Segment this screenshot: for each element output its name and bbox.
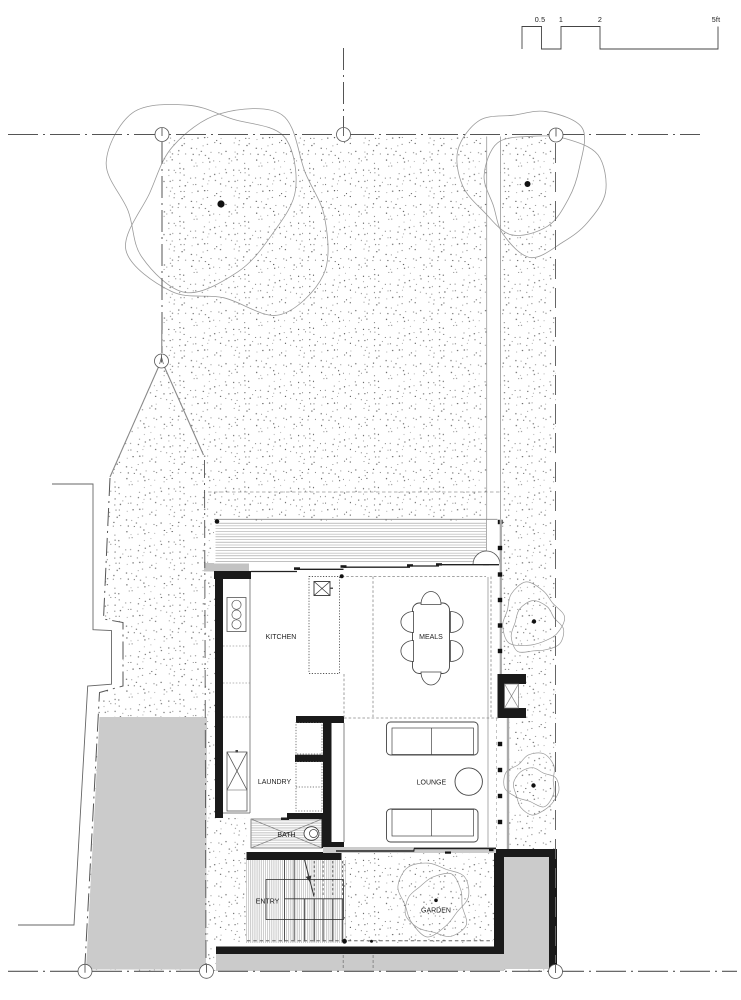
svg-text:LOUNGE: LOUNGE xyxy=(417,780,447,787)
svg-text:ENTRY: ENTRY xyxy=(256,899,280,906)
svg-text:2: 2 xyxy=(598,15,602,24)
svg-text:GARDEN: GARDEN xyxy=(421,908,451,915)
svg-text:MEALS: MEALS xyxy=(419,634,443,641)
svg-text:0.5: 0.5 xyxy=(535,15,546,24)
svg-text:1: 1 xyxy=(559,15,563,24)
svg-text:5ft: 5ft xyxy=(712,15,721,24)
svg-text:KITCHEN: KITCHEN xyxy=(266,634,297,641)
svg-text:LAUNDRY: LAUNDRY xyxy=(258,779,292,786)
svg-text:BATH: BATH xyxy=(277,832,295,839)
